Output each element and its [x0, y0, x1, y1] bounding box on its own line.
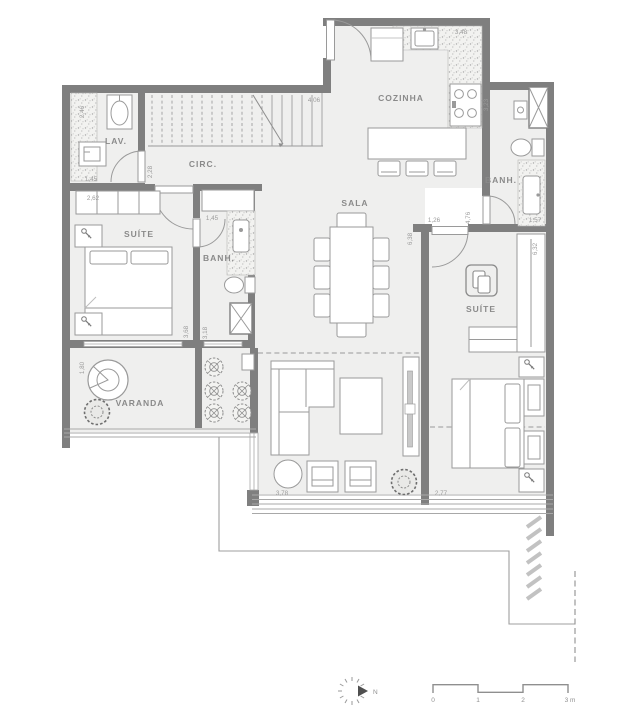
scale-tick-0: 0: [431, 697, 435, 704]
service-sink: [514, 101, 527, 119]
scale-tick-2: 2: [521, 697, 525, 704]
kitchen-island: [368, 128, 466, 159]
dim-suite-left-width: 2,62: [87, 195, 100, 202]
banh-left-cabinet: [202, 190, 254, 211]
room-label-banh-left: BANH.: [203, 253, 235, 263]
dining-chair: [314, 294, 330, 317]
toilet: [511, 139, 544, 156]
suite-left-furniture: [75, 191, 172, 335]
pillow: [505, 384, 520, 423]
nightstand: [524, 379, 544, 416]
dim-suite-left-height: 3,68: [183, 325, 190, 338]
pillow: [131, 251, 168, 264]
toilet: [225, 277, 256, 293]
banh-left-window: [204, 342, 242, 347]
room-label-suite-right: SUÍTE: [466, 304, 496, 314]
north-arrow-icon: [358, 686, 368, 697]
corner-table: [519, 357, 544, 377]
south-sliding-doors: [252, 495, 553, 514]
room-label-lav: LAV.: [105, 136, 127, 146]
tv-panel: [403, 357, 419, 456]
dim-banh-right-width: 1,57: [529, 217, 542, 224]
dining-chair: [373, 238, 389, 261]
cooktop-controls: [452, 101, 456, 108]
room-label-banh-right: BANH.: [485, 175, 517, 185]
scale-tick-3: 3 m: [565, 697, 576, 704]
dim-circ-width: 2,28: [147, 165, 154, 178]
dim-door-offset: 1,26: [428, 217, 441, 224]
duct-shaft: [230, 303, 252, 334]
louver-hatch: [527, 517, 541, 599]
floor-plan-page: LAV. CIRC. COZINHA SALA SUÍTE BANH. BANH…: [0, 0, 635, 720]
dining-chair: [373, 266, 389, 289]
bar-stools: [378, 161, 456, 176]
laundry-sink: [107, 95, 132, 129]
shower: [227, 211, 255, 275]
dim-stairs-length: 4,06: [308, 97, 321, 104]
dim-varanda-height: 1,80: [79, 361, 86, 374]
room-label-cozinha: COZINHA: [378, 93, 424, 103]
compass: N: [338, 677, 378, 705]
corner-table: [519, 469, 544, 492]
coffee-table: [340, 378, 382, 434]
duct-shaft: [529, 87, 548, 128]
dim-lav-width: 1,45: [85, 176, 98, 183]
dim-suite-right-height: 6,32: [532, 242, 539, 255]
scale-bar: 0 1 2 3 m: [431, 684, 575, 704]
dining-chair: [373, 294, 389, 317]
suite-left-varanda-window: [84, 342, 182, 347]
dining-chair: [314, 266, 330, 289]
room-label-circ: CIRC.: [189, 159, 217, 169]
plant: [392, 470, 417, 495]
dim-living-width: 3,78: [276, 490, 289, 497]
dim-service-height: 3,23: [483, 98, 490, 111]
room-label-varanda: VARANDA: [116, 398, 165, 408]
pillow: [90, 251, 127, 264]
lounge-chair: [88, 360, 128, 400]
dim-lav-height: 2,46: [79, 105, 86, 118]
cooktop: [450, 84, 481, 126]
scale-tick-1: 1: [476, 697, 480, 704]
nightstand: [75, 313, 102, 335]
armchair: [345, 461, 376, 492]
nightstand: [524, 431, 544, 464]
washing-machine: [79, 142, 106, 166]
dining-chair: [314, 238, 330, 261]
compass-north-label: N: [373, 689, 378, 696]
bed: [452, 379, 524, 468]
plant: [85, 400, 110, 425]
nightstand: [75, 225, 102, 247]
dim-east-hall-height: 4,76: [465, 211, 472, 224]
refrigerator: [371, 28, 403, 61]
pillow: [505, 428, 520, 467]
armchair: [307, 461, 338, 492]
sala-west-window: [250, 433, 258, 490]
dim-kitchen-width: 3,48: [455, 29, 468, 36]
kitchen-sink: [411, 28, 438, 49]
dim-banh-left-width: 1,45: [206, 215, 219, 222]
room-label-sala: SALA: [341, 198, 368, 208]
side-table: [274, 460, 302, 488]
room-label-suite-left: SUÍTE: [124, 229, 154, 239]
dim-living-height: 6,38: [407, 232, 414, 245]
dim-suite-right-width: 2,77: [435, 490, 448, 497]
dim-banh-left-height: 3,18: [202, 326, 209, 339]
scale-bar-lines: [433, 684, 568, 693]
floor-plan-drawing: LAV. CIRC. COZINHA SALA SUÍTE BANH. BANH…: [0, 0, 635, 720]
dining-table: [330, 227, 373, 323]
